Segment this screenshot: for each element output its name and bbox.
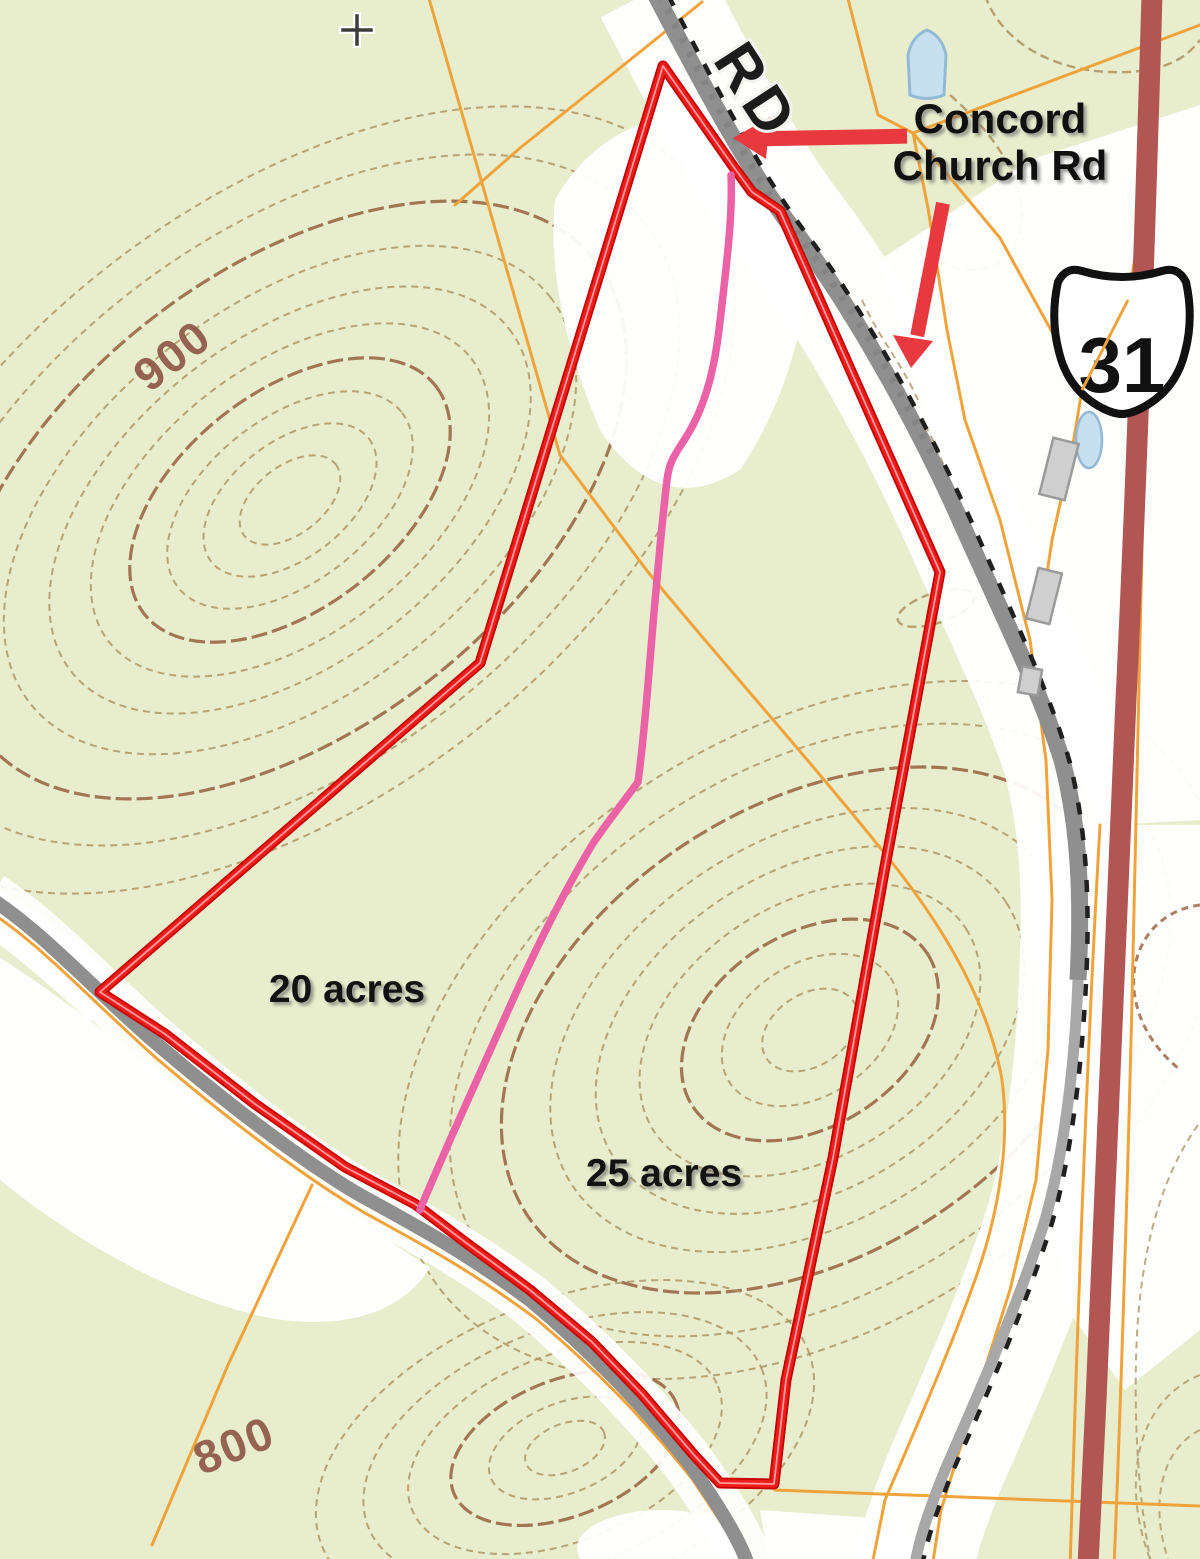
small-pond [1076, 412, 1102, 468]
road-callout-line1: Concord [914, 95, 1087, 142]
topo-map-svg: 31 900 800 RD Concord Church Rd 20 acres… [0, 0, 1200, 1559]
pond-water-tank [908, 30, 946, 99]
parcel-label-25-acres: 25 acres [586, 1152, 742, 1195]
route-shield-number: 31 [1079, 321, 1166, 409]
topo-map-canvas: 31 900 800 RD Concord Church Rd 20 acres… [0, 0, 1200, 1559]
parcel-label-20-acres: 20 acres [269, 968, 425, 1011]
road-callout-line2: Church Rd [893, 142, 1108, 189]
